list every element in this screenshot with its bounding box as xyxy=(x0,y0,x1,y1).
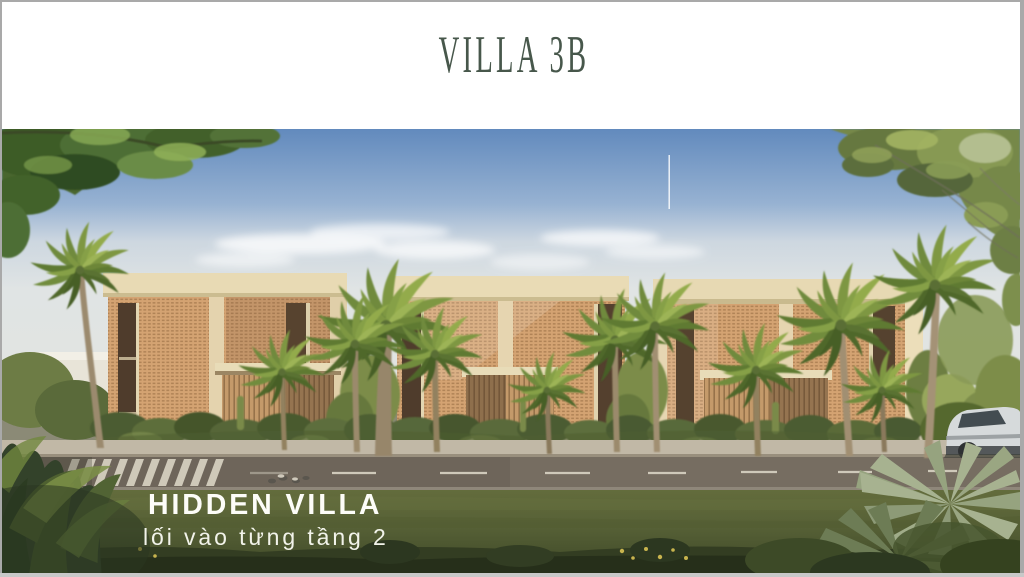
svg-text:HIDDEN VILLA: HIDDEN VILLA xyxy=(148,489,382,521)
svg-text:lối vào từng tầng 2: lối vào từng tầng 2 xyxy=(143,524,389,550)
svg-text:VILLA 3B: VILLA 3B xyxy=(439,26,590,84)
